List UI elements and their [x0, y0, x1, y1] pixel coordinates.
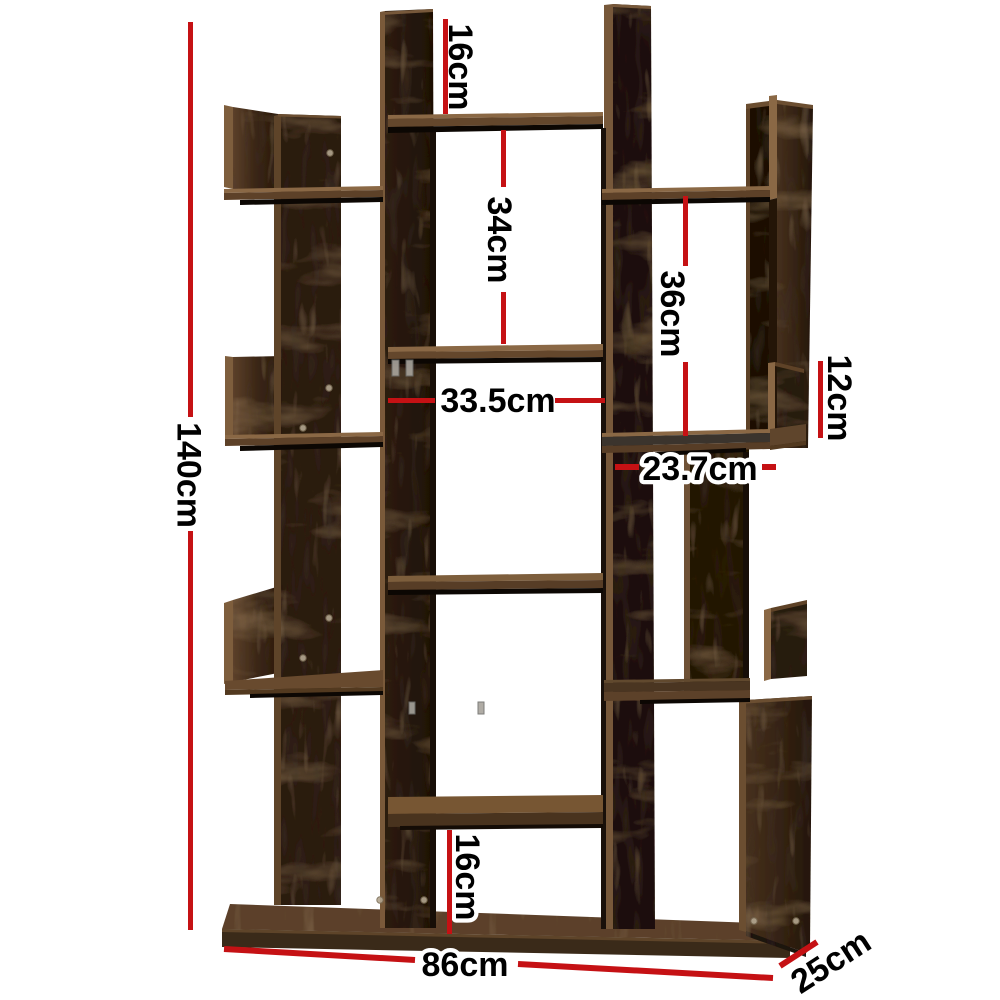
- svg-text:34cm: 34cm: [480, 197, 518, 284]
- svg-text:16cm: 16cm: [448, 834, 486, 921]
- svg-text:12cm: 12cm: [820, 355, 858, 442]
- svg-text:86cm: 86cm: [422, 946, 509, 984]
- svg-text:33.5cm: 33.5cm: [440, 382, 555, 420]
- svg-text:23.7cm: 23.7cm: [642, 450, 757, 488]
- svg-text:140cm: 140cm: [170, 422, 208, 528]
- svg-text:36cm: 36cm: [653, 271, 691, 358]
